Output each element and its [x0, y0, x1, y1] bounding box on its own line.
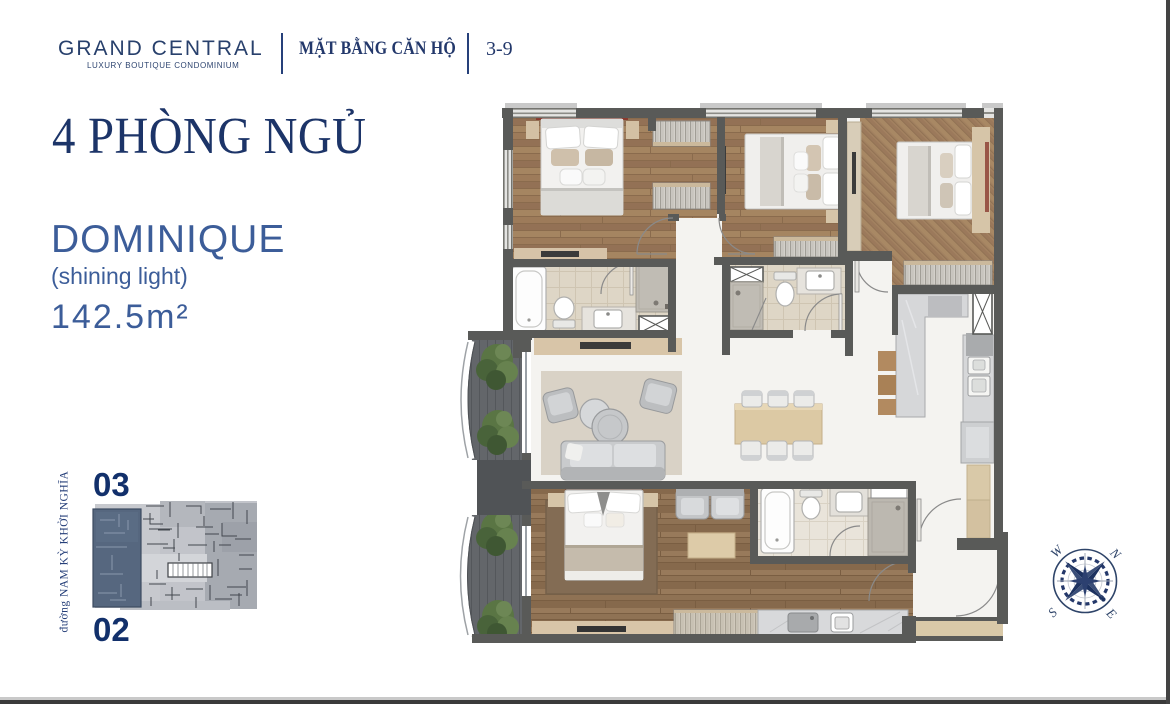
svg-text:E: E [1103, 605, 1120, 622]
svg-text:S: S [1045, 604, 1061, 620]
